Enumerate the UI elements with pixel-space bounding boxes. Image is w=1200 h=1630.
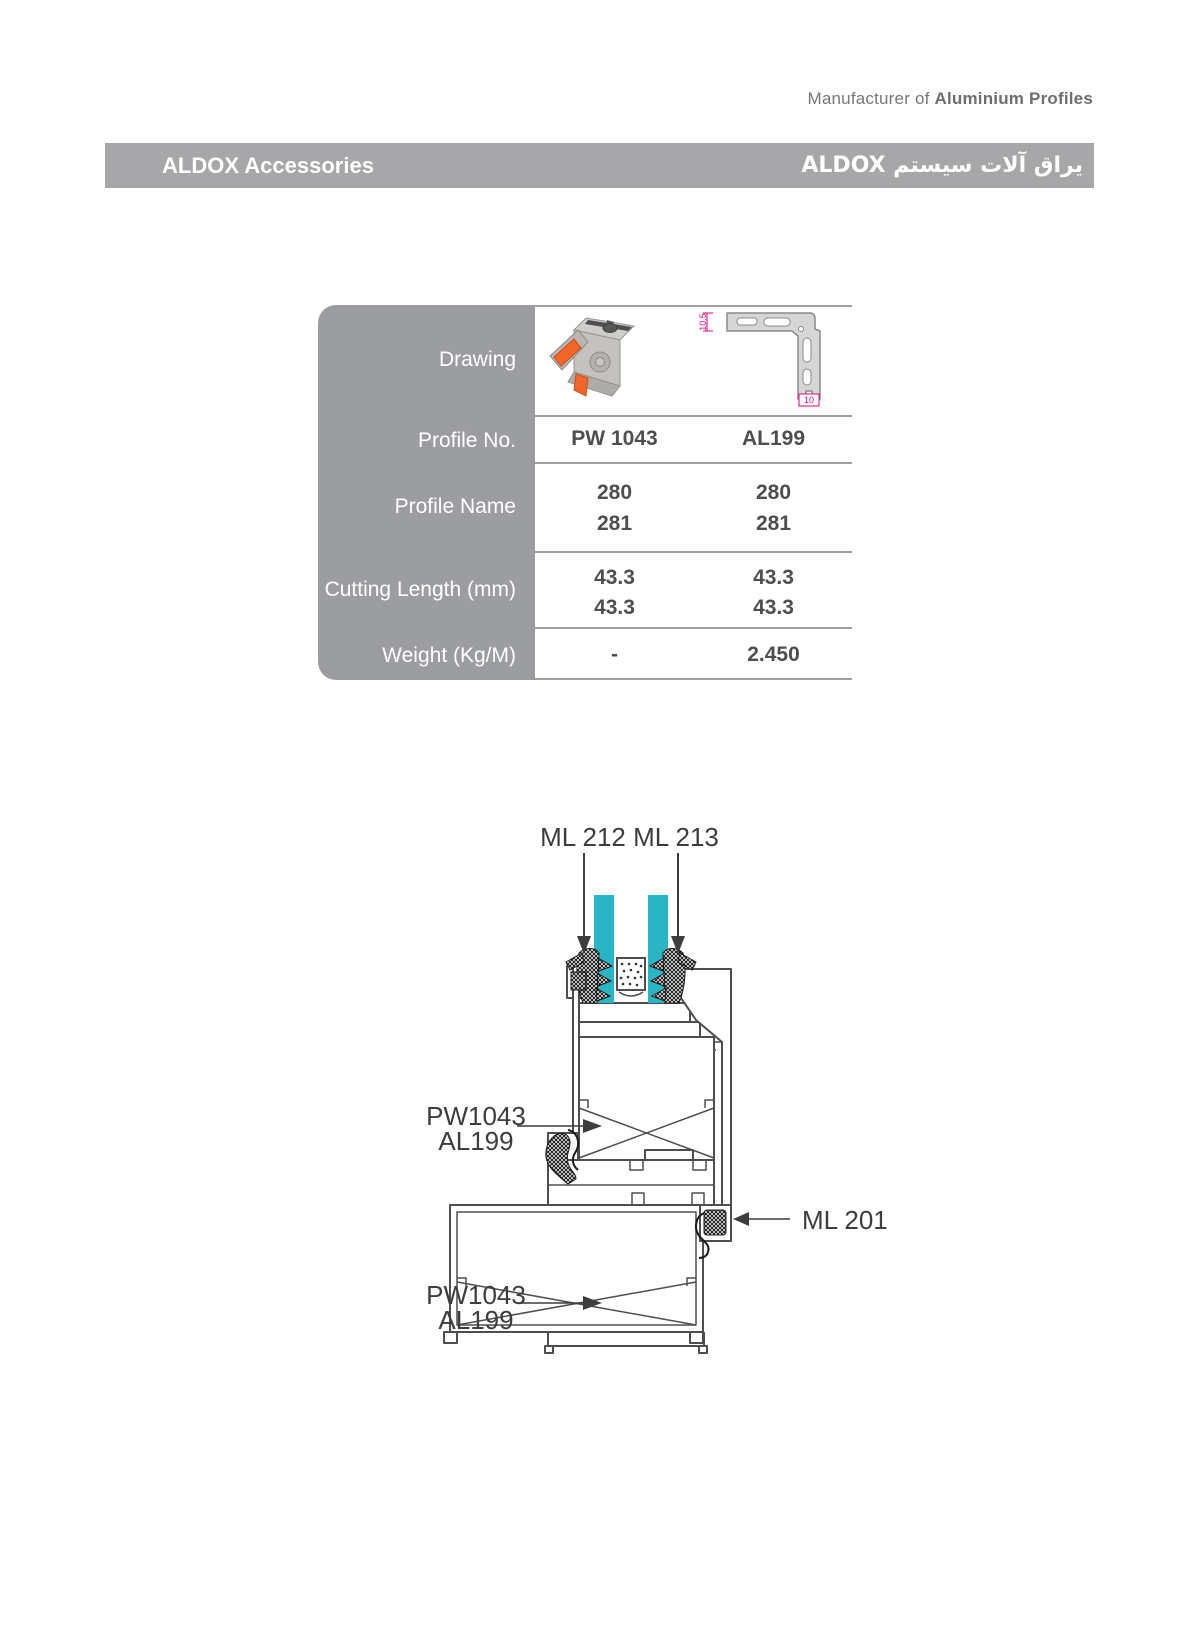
cell-len1-pw: 43.3 [535, 566, 694, 590]
row-label-drawing: Drawing [318, 348, 516, 372]
section-title-en: ALDOX Accessories [162, 153, 374, 179]
table-line-bottom [535, 678, 852, 680]
manufacturer-tagline: Manufacturer of Aluminium Profiles [808, 89, 1094, 109]
dim-height-label: 10.5 [698, 313, 708, 331]
row-label-weight: Weight (Kg/M) [318, 644, 516, 668]
cell-name1-al: 280 [694, 481, 853, 505]
sash-chamber [579, 1037, 714, 1160]
tagline-bold: Aluminium Profiles [934, 89, 1093, 108]
glass-spacer [617, 958, 645, 996]
table-line-3 [535, 551, 852, 553]
label-al199-top: AL199 [438, 1126, 513, 1156]
cell-weight-al: 2.450 [694, 643, 853, 667]
cell-profile-no-al: AL199 [694, 427, 853, 451]
section-title-fa: یراق آلات سیستم ALDOX [801, 153, 1083, 178]
label-ml212: ML 212 [540, 822, 626, 852]
cell-name2-pw: 281 [535, 512, 694, 536]
cell-len1-al: 43.3 [694, 566, 853, 590]
label-ml213: ML 213 [633, 822, 719, 852]
table-line-4 [535, 627, 852, 629]
cell-weight-pw: - [535, 643, 694, 667]
dim-width-label: 10 [804, 395, 814, 405]
label-al199-bottom: AL199 [438, 1305, 513, 1335]
bottom-track-channel [548, 1332, 704, 1346]
interlock-block [548, 1160, 714, 1205]
cell-profile-no-pw: PW 1043 [535, 427, 694, 451]
corner-bracket-photo [548, 312, 688, 404]
row-label-profile-name: Profile Name [318, 495, 516, 519]
corner-profile-drawing: 10.5 10 [695, 305, 830, 417]
glazing-ledge [579, 1022, 700, 1037]
catalog-page: Manufacturer of Aluminium Profiles ALDOX… [0, 0, 1200, 1630]
row-label-cutting-length: Cutting Length (mm) [318, 578, 516, 602]
table-line-2 [535, 462, 852, 464]
cell-len2-pw: 43.3 [535, 596, 694, 620]
cell-len2-al: 43.3 [694, 596, 853, 620]
glazing-shelf [579, 1003, 690, 1022]
row-label-profile-no: Profile No. [318, 429, 516, 453]
label-ml201: ML 201 [802, 1205, 888, 1235]
cell-name2-al: 281 [694, 512, 853, 536]
cell-name1-pw: 280 [535, 481, 694, 505]
section-title-bar: ALDOX Accessories یراق آلات سیستم ALDOX [105, 143, 1094, 188]
tagline-prefix: Manufacturer of [808, 89, 935, 108]
cross-section-diagram: ML 212 ML 213 PW1043 AL199 PW1043 AL199 … [410, 810, 890, 1370]
